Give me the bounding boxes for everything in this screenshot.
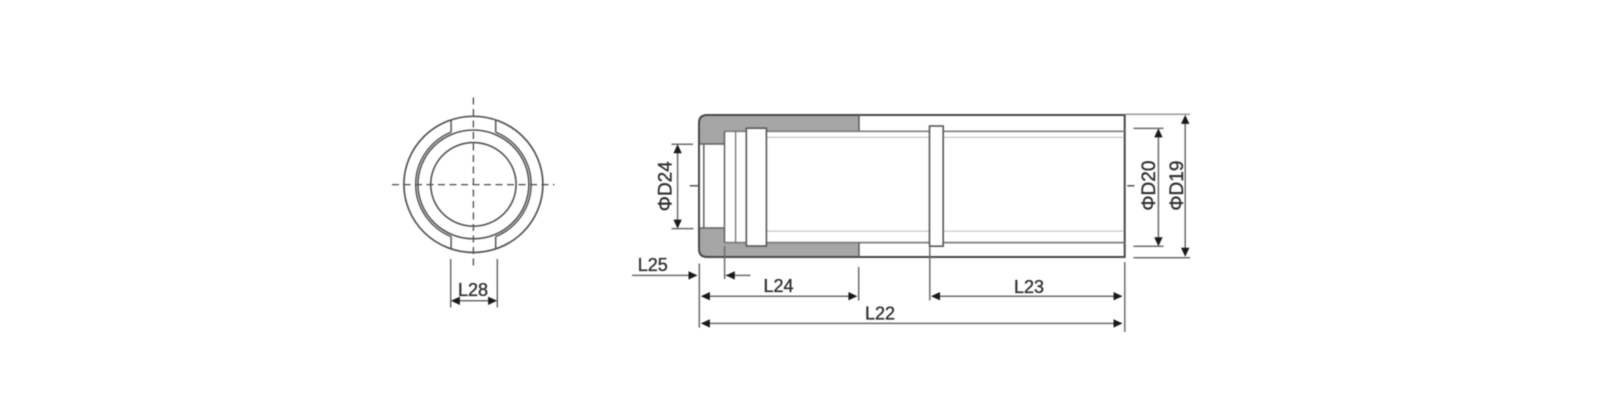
svg-text:L22: L22 (865, 304, 895, 324)
svg-text:ΦD24: ΦD24 (656, 161, 677, 211)
svg-text:L23: L23 (1014, 277, 1044, 297)
svg-text:L28: L28 (458, 280, 488, 300)
svg-text:ΦD20: ΦD20 (1139, 161, 1160, 211)
svg-text:ΦD19: ΦD19 (1167, 161, 1188, 211)
svg-text:L24: L24 (763, 276, 793, 296)
svg-text:L25: L25 (638, 255, 668, 275)
